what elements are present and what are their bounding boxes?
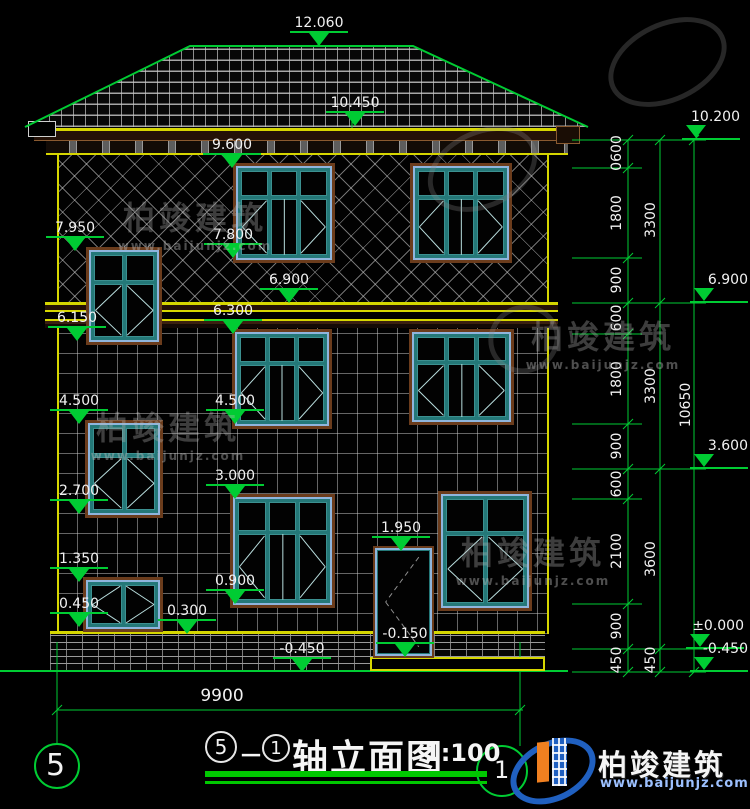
elevation-marker: -0.450 — [690, 641, 748, 672]
elevation-value: 0.450 — [59, 596, 99, 612]
elevation-value: 9.600 — [212, 137, 252, 153]
elevation-marker: 10.200 — [682, 109, 740, 140]
elevation-triangle-icon — [67, 328, 87, 341]
overall-width-dim: 9900 — [200, 686, 243, 706]
elevation-marker: -0.450 — [273, 641, 331, 672]
elevation-value: 6.150 — [57, 310, 97, 326]
elevation-value: 1.950 — [381, 520, 421, 536]
title-underline-thick — [205, 771, 487, 777]
elevation-value: 10.450 — [331, 95, 380, 111]
elevation-value: 6.900 — [708, 272, 748, 288]
elevation-triangle-icon — [694, 657, 714, 670]
elevation-marker: 9.600 — [203, 137, 261, 168]
dim-value: 450 — [643, 647, 659, 674]
dim-value: 600 — [609, 471, 625, 498]
elevation-marker: 7.800 — [204, 227, 262, 258]
elevation-triangle-icon — [345, 113, 365, 126]
elevation-triangle-icon — [309, 33, 329, 46]
window-1f-right — [438, 491, 532, 611]
dim-value: 3300 — [643, 368, 659, 404]
elevation-value: 10.200 — [691, 109, 740, 125]
elevation-triangle-icon — [222, 155, 242, 168]
elevation-value: -0.450 — [279, 641, 324, 657]
brand-url: www.baijunjz.com — [600, 776, 749, 791]
elevation-value: 0.900 — [215, 573, 255, 589]
elevation-triangle-icon — [686, 125, 706, 138]
dim-value: 900 — [609, 433, 625, 460]
dim-value: 900 — [609, 613, 625, 640]
elevation-marker: 4.500 — [206, 393, 264, 424]
drawing-scale: 1:100 — [424, 739, 500, 767]
elevation-marker: 7.950 — [46, 220, 104, 251]
elevation-value: ±0.000 — [692, 618, 744, 634]
entry-landing — [370, 657, 545, 671]
elevation-triangle-icon — [69, 614, 89, 627]
elevation-triangle-icon — [292, 659, 312, 672]
elevation-marker: 1.350 — [50, 551, 108, 582]
elevation-triangle-icon — [223, 245, 243, 258]
elevation-triangle-icon — [694, 288, 714, 301]
elevation-value: 3.000 — [215, 468, 255, 484]
elevation-marker: 3.000 — [206, 468, 264, 499]
dim-value: 600 — [609, 305, 625, 332]
elevation-triangle-icon — [69, 569, 89, 582]
window-2f-right — [409, 329, 514, 425]
window-3f-right — [410, 163, 512, 263]
title-underline-thin — [205, 781, 487, 784]
elevation-value: 6.900 — [269, 272, 309, 288]
elevation-marker: 6.900 — [260, 272, 318, 303]
dim-value: 1800 — [609, 195, 625, 231]
elevation-triangle-icon — [69, 501, 89, 514]
elevation-value: 4.500 — [59, 393, 99, 409]
title-axis-start-number: 5 — [215, 735, 228, 759]
elevation-triangle-icon — [694, 454, 714, 467]
brand-logo-building-orange-icon — [537, 741, 549, 782]
elevation-value: 7.800 — [213, 227, 253, 243]
dim-value: 450 — [609, 647, 625, 674]
dim-value: 0600 — [609, 135, 625, 171]
elevation-value: 1.350 — [59, 551, 99, 567]
elevation-triangle-icon — [69, 411, 89, 424]
dim-value: 3600 — [643, 541, 659, 577]
title-axis-end-bubble: 1 — [262, 734, 290, 762]
elevation-triangle-icon — [391, 538, 411, 551]
elevation-value: 0.300 — [167, 603, 207, 619]
elevation-value: -0.150 — [382, 626, 427, 642]
elevation-marker: -0.150 — [376, 626, 434, 657]
elevation-marker: 0.450 — [50, 596, 108, 627]
title-axis-start-bubble: 5 — [205, 731, 237, 763]
elevation-value: 3.600 — [708, 438, 748, 454]
elevation-triangle-icon — [177, 621, 197, 634]
elevation-marker: 2.700 — [50, 483, 108, 514]
elevation-value: 4.500 — [215, 393, 255, 409]
dim-value: 10650 — [678, 383, 694, 428]
elevation-triangle-icon — [225, 411, 245, 424]
elevation-marker: 3.600 — [690, 438, 748, 469]
elevation-marker: 0.900 — [206, 573, 264, 604]
elevation-marker: 0.300 — [158, 603, 216, 634]
elevation-marker: 6.900 — [690, 272, 748, 303]
elevation-value: 2.700 — [59, 483, 99, 499]
elevation-marker: 6.300 — [204, 303, 262, 334]
elevation-marker: 10.450 — [326, 95, 384, 126]
elevation-marker: 12.060 — [290, 15, 348, 46]
elevation-triangle-icon — [223, 321, 243, 334]
elevation-marker: 6.150 — [48, 310, 106, 341]
elevation-triangle-icon — [65, 238, 85, 251]
elevation-triangle-icon — [395, 644, 415, 657]
elevation-triangle-icon — [279, 290, 299, 303]
title-axis-end-number: 1 — [270, 738, 281, 759]
brand-logo-building-blue-icon — [552, 738, 567, 786]
elevation-value: 6.300 — [213, 303, 253, 319]
dim-value: 2100 — [609, 533, 625, 569]
elevation-triangle-icon — [225, 486, 245, 499]
elevation-drawing-canvas: 12.060 10.450 9.600 7.950 7.800 6.900 6.… — [0, 0, 750, 809]
elevation-marker: 1.950 — [372, 520, 430, 551]
dim-value: 900 — [609, 267, 625, 294]
axis-bubble-left-number: 5 — [46, 748, 65, 783]
roof-outline — [25, 46, 588, 127]
elevation-triangle-icon — [225, 591, 245, 604]
elevation-value: 7.950 — [55, 220, 95, 236]
title-separator: － — [239, 736, 263, 771]
elevation-marker: 4.500 — [50, 393, 108, 424]
elevation-value: 12.060 — [295, 15, 344, 31]
dim-value: 3300 — [643, 202, 659, 238]
dim-value: 1800 — [609, 361, 625, 397]
elevation-value: -0.450 — [703, 641, 748, 657]
